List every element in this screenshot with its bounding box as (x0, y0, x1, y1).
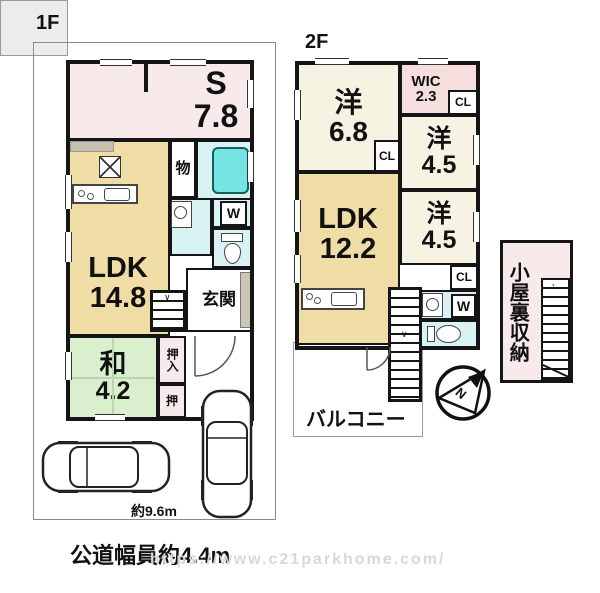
room-service-label: S7.8 (186, 64, 246, 136)
closet-oshiire: 押入 (158, 336, 186, 384)
shoe-cabinet (240, 272, 251, 328)
stair-direction-arrow: ∨ (164, 293, 171, 302)
room-west-4-5-b: 洋4.5 (400, 190, 478, 265)
window-marker (65, 352, 72, 380)
wall-stub (144, 62, 148, 92)
closet-cl-b: CL (448, 90, 478, 115)
car-icon (196, 388, 258, 520)
toilet-tank-icon (221, 233, 243, 242)
window-marker (294, 200, 301, 232)
room-wic-label: WIC2.3 (401, 67, 451, 111)
window-marker (473, 135, 480, 165)
washer-box-1f: W (220, 201, 247, 226)
window-marker (247, 80, 254, 108)
watermark-url: https://www.c21parkhome.com/ (150, 551, 445, 569)
window-marker (170, 59, 206, 66)
toilet-bowl-icon (436, 325, 461, 343)
window-marker (418, 58, 448, 65)
window-marker (65, 232, 72, 262)
tatami-line (112, 378, 114, 418)
stove-burner-icon (314, 297, 321, 304)
washbasin-bowl-icon (426, 298, 439, 311)
kitchen-sink-1f (104, 188, 130, 201)
closet-cl-a: CL (374, 140, 400, 172)
washer-box-2f: W (451, 294, 476, 318)
stair-direction-arrow: ↑ (551, 282, 556, 291)
balcony-door-arc (364, 345, 392, 373)
balcony-label: バルコニー (306, 403, 406, 432)
window-marker (100, 59, 132, 66)
floor1-label: 1F (36, 12, 59, 35)
stair-direction-arrow: ∨ (401, 330, 408, 339)
stove-burner-icon (87, 193, 94, 200)
floorplan-canvas: 1F S7.8 LDK14.8 物 W 玄関 ∨ 和4.2 (0, 0, 600, 593)
kitchen-sink-2f (331, 292, 357, 306)
entrance-door-arc (192, 333, 238, 379)
window-marker (294, 255, 301, 283)
window-marker (65, 175, 72, 209)
washbasin-bowl-icon (174, 206, 187, 219)
staircase-2f (388, 287, 422, 402)
kitchen-shelf (70, 141, 114, 152)
closet-mono: 物 (170, 140, 196, 198)
floor-hatch-icon (99, 156, 121, 178)
compass-icon: N (432, 362, 494, 424)
window-marker (247, 152, 254, 182)
window-marker (95, 414, 125, 421)
tatami-line (112, 338, 114, 377)
bathtub-icon (212, 147, 249, 194)
stove-burner-icon (306, 293, 313, 300)
toilet-tank-icon (427, 326, 435, 342)
stove-burner-icon (78, 190, 85, 197)
room-ldk-2f-label: LDK12.2 (300, 192, 396, 278)
parking-dimension-label: 約9.6m (131, 501, 177, 521)
car-icon (40, 436, 172, 498)
room-west-4-5-a: 洋4.5 (400, 115, 478, 190)
closet-cl-c: CL (450, 265, 478, 290)
closet-oshi: 押 (158, 384, 186, 418)
window-marker (294, 90, 301, 120)
window-marker (473, 212, 480, 242)
window-marker (315, 58, 349, 65)
floor2-label: 2F (305, 31, 328, 54)
attic-storage-label: 小屋裏収納 (502, 248, 532, 376)
